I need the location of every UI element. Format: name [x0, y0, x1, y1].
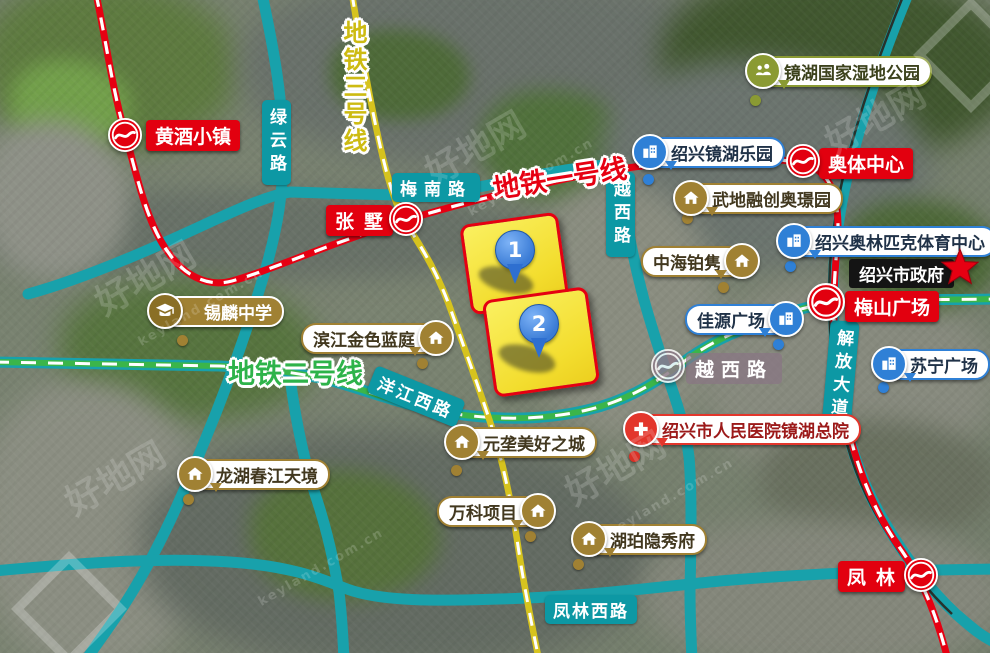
poi-label: 万科项目 — [449, 499, 517, 524]
poi-jinghu-paradise: 绍兴镜湖乐园 — [647, 137, 785, 168]
government-star-icon — [938, 246, 982, 290]
poi-jinghu-national-wetland-park: 镜湖国家湿地公园 — [760, 56, 932, 87]
building-icon — [768, 301, 804, 337]
satellite-map: 地铁三号线 地铁一号线 地铁二号线 绿云路 梅南路 越西路 解放大道 洋江西路 … — [0, 0, 990, 653]
metro-station-icon-fenglin — [904, 558, 938, 592]
poi-hupo-yinxiufu: 湖珀隐秀府 — [586, 524, 707, 555]
parcel-2-number: 2 — [519, 304, 559, 344]
house-icon — [520, 493, 556, 529]
line2-name-text: 地铁二号线 — [228, 352, 363, 391]
poi-label: 中海铂隽 — [653, 249, 721, 274]
poi-label: 滨江金色蓝庭 — [313, 326, 415, 351]
station-label-huangjiu: 黄酒小镇 — [146, 120, 240, 151]
station-label-yuexilu: 越西路 — [686, 353, 782, 384]
parcel-1-number: 1 — [495, 230, 535, 270]
poi-label: 龙湖春江天境 — [216, 462, 318, 487]
building-icon — [871, 346, 907, 382]
hospital-cross-icon — [623, 411, 659, 447]
house-icon — [571, 521, 607, 557]
road-label-meinan: 梅南路 — [392, 173, 480, 202]
poi-label: 武地融创奥璟园 — [712, 186, 831, 211]
metro-station-icon-zhangshu — [389, 202, 423, 236]
building-icon — [632, 134, 668, 170]
line3-name-text: 地铁三号线 — [336, 20, 371, 155]
poi-shaoxing-peoples-hospital: 绍兴市人民医院镜湖总院 — [638, 414, 861, 445]
metro-station-icon-aoti — [786, 144, 820, 178]
poi-zhonghai-bojun: 中海铂隽 — [641, 246, 745, 277]
station-label-zhangshu: 张墅 — [326, 205, 393, 236]
station-label-aoti: 奥体中心 — [819, 148, 913, 179]
poi-label: 元垄美好之城 — [483, 430, 585, 455]
poi-label: 镜湖国家湿地公园 — [784, 59, 920, 84]
metro-station-icon-huangjiu — [108, 118, 142, 152]
station-label-fenglin: 凤林 — [838, 561, 905, 592]
poi-binjiang-jinse-lanting: 滨江金色蓝庭 — [301, 323, 439, 354]
station-label-meishan: 梅山广场 — [845, 291, 939, 322]
building-icon — [776, 223, 812, 259]
metro-station-icon-yuexilu — [651, 349, 685, 383]
poi-xilin-school: 锡麟中学 — [162, 296, 284, 327]
park-icon — [745, 53, 781, 89]
poi-suning-plaza: 苏宁广场 — [886, 349, 990, 380]
poi-label: 湖珀隐秀府 — [610, 527, 695, 552]
poi-wanke-project: 万科项目 — [437, 496, 541, 527]
poi-yuanlong-meihao-zhicheng: 元垄美好之城 — [459, 427, 597, 458]
house-icon — [673, 180, 709, 216]
poi-jiayuan-plaza: 佳源广场 — [685, 304, 789, 335]
parcel-1-pin-icon: 1 — [495, 230, 535, 270]
house-icon — [724, 243, 760, 279]
graduation-cap-icon — [147, 293, 183, 329]
poi-wudi-rongchuang-aojingyuan: 武地融创奥璟园 — [688, 183, 843, 214]
house-icon — [418, 320, 454, 356]
parcel-2-pin-icon: 2 — [519, 304, 559, 344]
poi-label: 绍兴市人民医院镜湖总院 — [662, 417, 849, 442]
poi-label: 锡麟中学 — [204, 299, 272, 324]
road-south-branch — [289, 370, 344, 653]
poi-longhu-chunjiang-tianjing: 龙湖春江天境 — [192, 459, 330, 490]
metro-station-icon-meishan — [807, 283, 845, 321]
poi-label: 苏宁广场 — [910, 352, 978, 377]
road-label-lvyun: 绿云路 — [262, 100, 291, 185]
house-icon — [177, 456, 213, 492]
house-icon — [444, 424, 480, 460]
road-label-fenglinxi: 凤林西路 — [545, 595, 637, 624]
poi-label: 绍兴镜湖乐园 — [671, 140, 773, 165]
poi-label: 佳源广场 — [697, 307, 765, 332]
